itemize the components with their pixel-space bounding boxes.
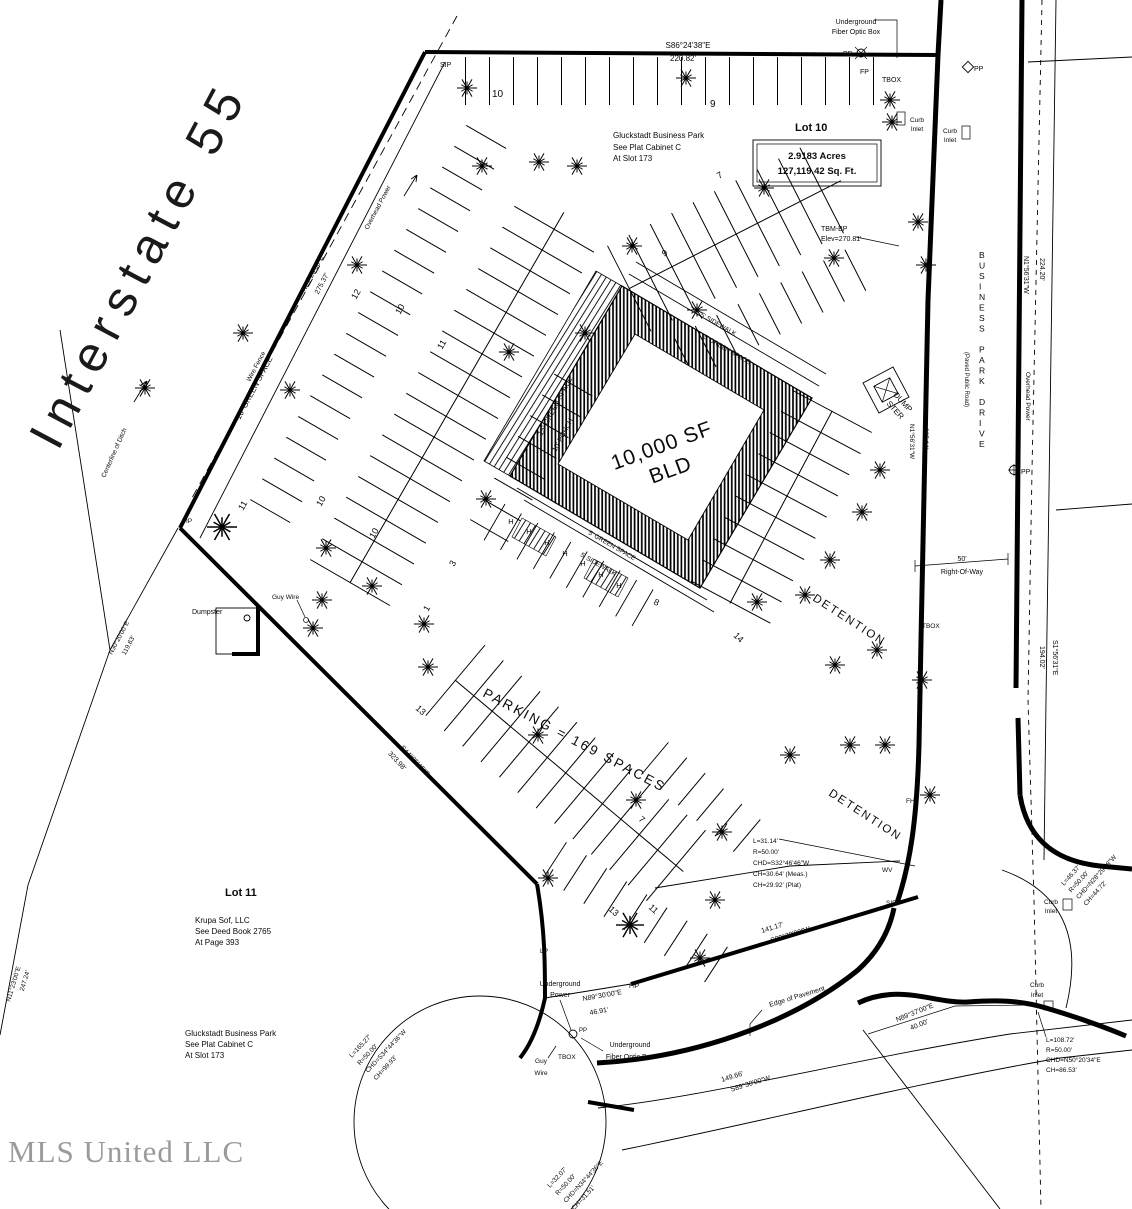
tbox-top: TBOX [882,77,901,84]
curb-inlet-icon [897,112,905,125]
curve4-chd: CHD=N50°20'34"E [1046,1056,1101,1064]
parking-count: 10 [314,494,328,508]
north-side-street-line [1028,57,1132,62]
pp-bottom: PP [579,1028,587,1034]
curb-inlet-br-1: Curb [1030,982,1044,989]
overhead-power-road: Overhead Power [1024,372,1031,422]
lot10-plat-2: See Plat Cabinet C [613,143,681,152]
curb-inlet-mr-2: Inlet [1045,908,1057,915]
lot10-title: Lot 10 [795,122,827,134]
bottom-right-line [863,1030,1000,1209]
fiber-top-leader [874,20,897,58]
guy-wire-bot-1: Guy [535,1058,548,1065]
handicap-mark: H [544,538,549,547]
dist-e224: 224.20' [1038,258,1045,281]
dist-top: 220.82' [670,54,696,63]
pin-fip-bottom: FIP [629,983,639,990]
pp-top: PP [843,51,853,58]
tree-icon [233,324,253,341]
tree-icon [207,514,237,540]
bearing-e194: S1°56'31"E [1051,640,1059,676]
ditch-label: Centerline of Ditch [100,427,128,479]
dist-i55: 275.37' [314,272,331,295]
dumpster-wall [232,606,258,654]
curb-inlet-mr-1: Curb [1044,899,1058,906]
area-sqft: 127,119.42 Sq. Ft. [778,166,857,177]
tree-icon [908,213,928,230]
curve1-r: R=50.00' [753,849,779,856]
bearing-top: S86°24'38"E [666,41,711,50]
row-dim: 50' [957,556,966,563]
tree-icon [705,891,725,908]
lot11-title: Lot 11 [225,887,257,899]
dist-s46: 46.91' [589,1007,609,1017]
lot11-owner-1: Krupa Sof, LLC [195,916,250,925]
tree-icon [529,153,549,170]
curve1-ch1: CH=30.64' (Meas.) [753,871,808,878]
curb-inlet-w-2: Inlet [911,126,923,133]
curve1-chd: CHD=S32°46'46"W [753,859,810,867]
guy-wire-top: Guy Wire [272,594,299,601]
fiber-box-bot-1: Underground [610,1042,651,1049]
parking-count: 11 [236,499,249,512]
fire-hydrant: FH [906,798,915,805]
bearing-s46: N89°30'00"E [582,988,623,1003]
lot11-owner-3: At Page 393 [195,938,240,947]
tbox-bottom: TBOX [558,1054,576,1061]
bearing-s40: N89°37'00"E [895,1001,935,1023]
lot10-plat-3: At Slot 173 [613,154,653,163]
tree-icon [347,256,367,273]
pavement-edge-thick-3 [588,1102,634,1110]
guy-top-leader [297,600,305,617]
tbm-elev: Elev=270.81' [821,236,861,243]
fiber-box-bot-2: Fiber Optic Box [606,1054,655,1061]
power-pole-icon [244,615,250,621]
pin-sip-top: SIP [440,62,452,69]
fiber-box-top-2: Fiber Optic Box [832,29,881,36]
handicap-mark: H [598,570,603,579]
parking-count: 9 [710,99,716,110]
parking-count: 14 [732,630,746,644]
tree-icon [312,591,332,608]
fiber-bot-leader [581,1038,603,1051]
handicap-mark: H [508,517,513,526]
tree-icon [820,551,840,568]
tree-icon [567,157,587,174]
edge-of-pavement-2 [622,1050,1132,1150]
tbox-mid: TBOX [922,623,940,630]
guy-anchor-icon [304,618,309,623]
upower-1: Underground [540,981,581,988]
curb-inlet-w-1: Curb [910,117,924,124]
curb-inlet-e-1: Curb [943,128,957,135]
parking-count: 8 [652,597,661,608]
parking-count: 7 [715,170,724,181]
water-valve: WV [882,867,893,874]
tree-icon [870,461,890,478]
tree-icon [414,615,434,632]
lot11-plat-1: Gluckstadt Business Park [185,1029,277,1038]
bearing-e224: N1°56'31"W [1022,256,1030,294]
parking-count: 10 [492,89,504,100]
area-acres: 2.9183 Acres [788,151,846,162]
tree-icon [303,619,323,636]
pp-ne: PP [974,66,984,73]
curve4-l: L=108.72' [1046,1037,1075,1044]
pin-sip-bottom: SIP [886,900,896,907]
parking-count: 3 [447,559,458,568]
interstate-label: Interstate 55 [18,71,259,458]
parking-stalls [465,57,893,105]
pp-road: PP [1021,469,1031,476]
tree-icon [875,736,895,753]
curve1-ch2: CH=29.92' (Plat) [753,882,801,889]
dist-s141: 141.17' [761,922,785,935]
bearing-sw: S44°05'45"E [399,744,432,778]
road-east-edge [1016,0,1022,795]
road-west-edge [897,0,941,903]
parking-count: 12 [349,287,363,301]
dist-e194: 194.02' [1038,646,1045,669]
dist-e205: 205.14' [922,428,929,449]
lot11-plat-3: At Slot 173 [185,1051,225,1060]
tree-icon [916,256,936,273]
pin-fip-west: FIP [182,518,192,525]
parking-count: 1 [421,604,432,613]
dim-40-line [868,1005,1030,1034]
lot11-plat-2: See Plat Cabinet C [185,1040,253,1049]
upower-2: Power [550,992,571,999]
site-plan-page: Interstate 55 MLS United LLC S86°24'38"E… [0,0,1132,1209]
overhead-power-line [1028,0,1042,1209]
curve4-leader [1038,1012,1046,1037]
handicap-mark: H [616,581,621,590]
bearing-e205: N1°56'31"W [908,424,916,460]
curve4-r: R=50.00' [1046,1047,1072,1054]
curve1-l: L=31.14' [753,838,778,845]
dumpster-label: Dumpster [192,609,223,616]
detention-1: DETENTION [810,592,887,648]
guy-wire-bot-2: Wire [534,1070,548,1077]
tree-icon [418,658,438,675]
east-side-street-line [1056,504,1132,510]
handicap-mark: H [580,559,585,568]
curb-inlet-e-2: Inlet [944,137,956,144]
road-name: BUSINESS PARK DRIVE [979,250,985,449]
tree-icon [840,736,860,753]
tree-icon [780,746,800,763]
tree-icon [825,656,845,673]
detention-2: DETENTION [826,787,903,843]
guy-bot-leader [548,1046,556,1058]
lot11-owner-2: See Deed Book 2765 [195,927,272,936]
tree-icon [852,503,872,520]
curb-inlet-icon [1063,899,1072,910]
lot10-plat-1: Gluckstadt Business Park [613,131,705,140]
flow-arrow-icon [404,175,417,196]
handicap-mark: H [526,527,531,536]
boundary-west-return [520,884,545,1058]
site-plan-canvas: Interstate 55 MLS United LLC S86°24'38"E… [0,0,1132,1209]
pin-fp: FP [860,69,869,76]
curb-inlet-icon [962,126,970,139]
dist-s40: 40.00' [909,1019,929,1033]
labels: Interstate 55 MLS United LLC S86°24'38"E… [4,19,1126,1209]
tree-icon [280,381,300,398]
parking-row-band [465,57,893,105]
curve4-ch: CH=86.53' [1046,1067,1077,1074]
east-row-line [1044,0,1056,860]
light-pole: LP [540,948,548,955]
tree-icon [882,113,902,130]
row-label: Right-Of-Way [941,569,984,576]
handicap-mark: H [562,549,567,558]
dist-s149: 149.66' [721,1071,745,1084]
tree-icon [920,786,940,803]
road-type: (Paved Public Road) [963,352,969,407]
dist-ditch1: 119.63' [121,635,137,657]
watermark: MLS United LLC [8,1134,244,1169]
fiber-box-top-1: Underground [836,19,877,26]
tree-icon [135,379,155,396]
tbm-leader [856,237,899,246]
power-pole-icon [962,61,973,72]
curb-inlet-br-2: Inlet [1031,992,1043,999]
tbm-label: TBM-BP [821,226,848,233]
